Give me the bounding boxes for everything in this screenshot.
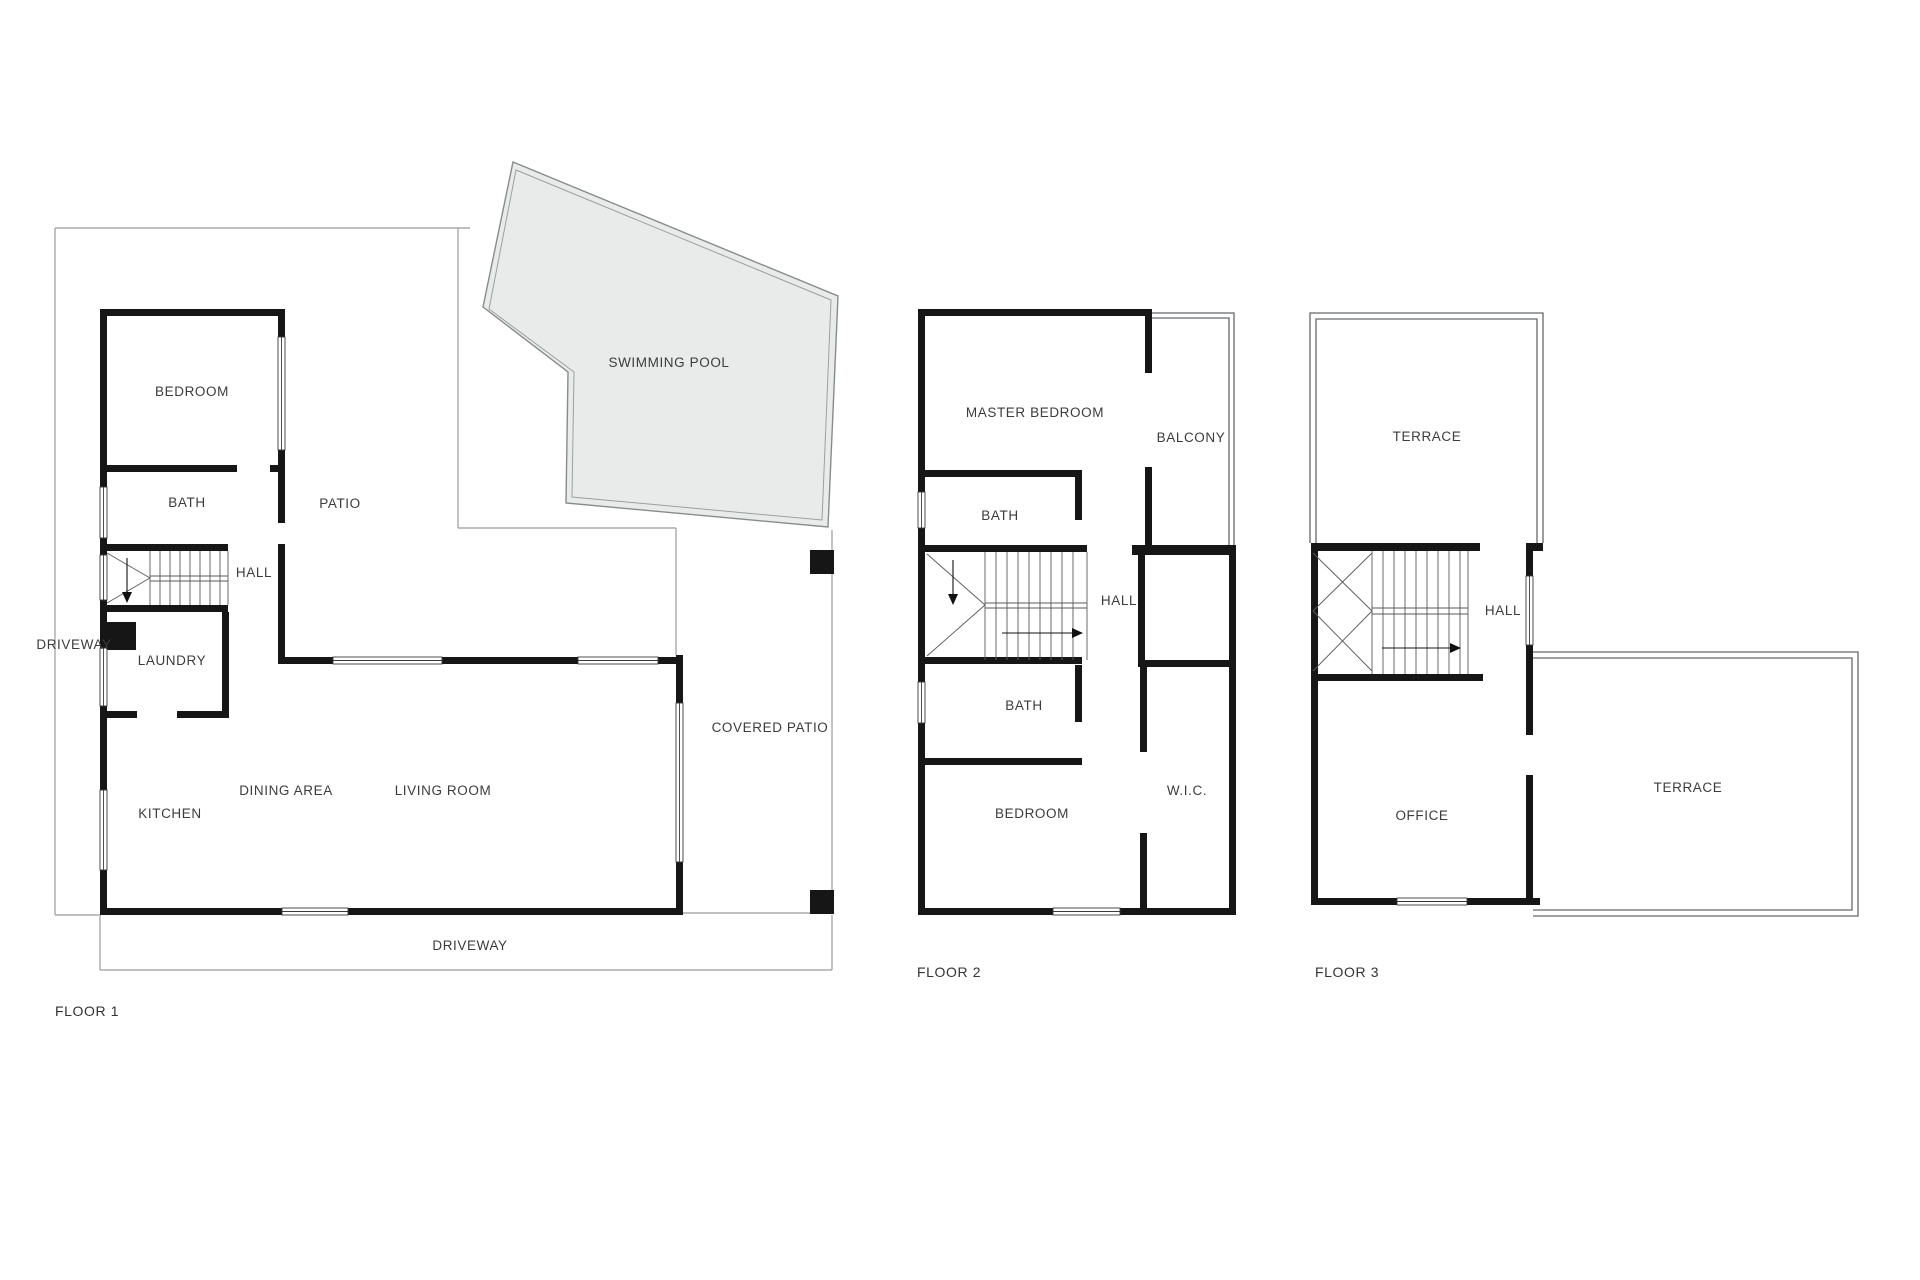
patio-column-top (810, 550, 834, 574)
dining-area-label: DINING AREA (239, 783, 333, 798)
floor3-caption: FLOOR 3 (1315, 964, 1379, 980)
covered-patio-label: COVERED PATIO (712, 720, 829, 735)
hall-label: HALL (1101, 593, 1137, 608)
laundry-label: LAUNDRY (138, 653, 206, 668)
bath-lower-label: BATH (1005, 698, 1042, 713)
swimming-pool-shape (483, 162, 838, 527)
floor2-walls (918, 309, 1236, 915)
stairs-up-arrow (1072, 628, 1083, 638)
bedroom-label: BEDROOM (155, 384, 229, 399)
hall-label: HALL (236, 565, 272, 580)
floor3-plan: TERRACE HALL OFFICE TERRACE FLOOR 3 (1310, 313, 1858, 980)
floor3-stairs (1313, 551, 1468, 674)
balcony-label: BALCONY (1157, 430, 1226, 445)
patio-label: PATIO (319, 496, 361, 511)
kitchen-label: KITCHEN (138, 806, 201, 821)
driveway-side-label: DRIVEWAY (36, 637, 111, 652)
floor1-plan: BEDROOM BATH HALL LAUNDRY DRIVEWAY KITCH… (36, 162, 838, 1019)
floor2-stairs (927, 552, 1087, 660)
living-room-label: LIVING ROOM (395, 783, 492, 798)
driveway-bottom-label: DRIVEWAY (432, 938, 507, 953)
floor-plan-canvas: BEDROOM BATH HALL LAUNDRY DRIVEWAY KITCH… (0, 0, 1920, 1280)
master-bedroom-label: MASTER BEDROOM (966, 405, 1104, 420)
terrace-lower-label: TERRACE (1654, 780, 1723, 795)
stairs-down-arrow (948, 594, 958, 605)
hall-label: HALL (1485, 603, 1521, 618)
floor3-windows (1397, 576, 1533, 905)
office-label: OFFICE (1395, 808, 1448, 823)
stairs-down-arrow (122, 592, 132, 603)
floor3-terrace-upper-outline (1310, 313, 1543, 543)
floor1-stairs (107, 551, 228, 605)
bath-label: BATH (168, 495, 205, 510)
patio-column-bottom (810, 890, 834, 914)
floor2-caption: FLOOR 2 (917, 964, 981, 980)
bedroom-label: BEDROOM (995, 806, 1069, 821)
floor1-caption: FLOOR 1 (55, 1003, 119, 1019)
wic-label: W.I.C. (1167, 783, 1207, 798)
swimming-pool-label: SWIMMING POOL (608, 355, 729, 370)
terrace-upper-label: TERRACE (1393, 429, 1462, 444)
bath-upper-label: BATH (981, 508, 1018, 523)
floor2-plan: MASTER BEDROOM BALCONY BATH HALL BATH BE… (917, 309, 1236, 980)
stairs-up-arrow (1450, 643, 1461, 653)
